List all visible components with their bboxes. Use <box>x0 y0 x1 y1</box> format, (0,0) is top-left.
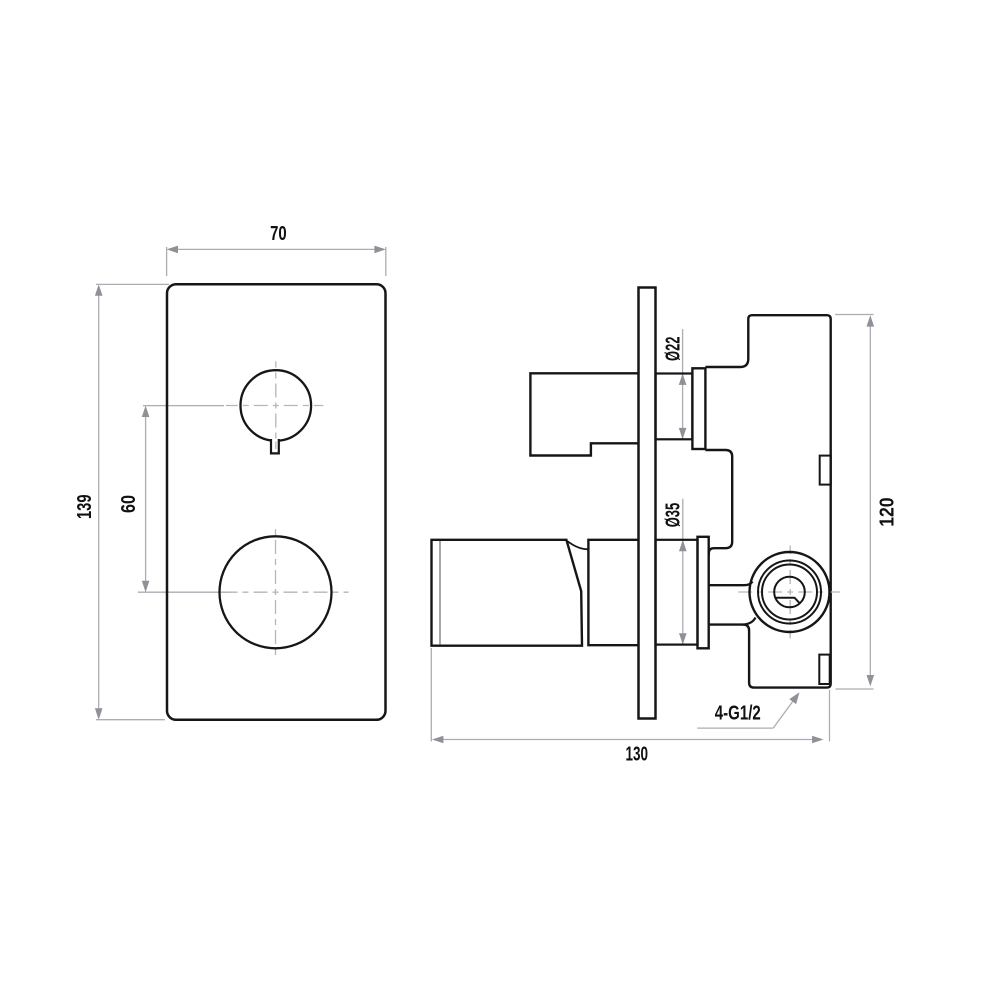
svg-text:120: 120 <box>876 497 898 526</box>
svg-text:70: 70 <box>270 223 287 245</box>
svg-text:Ø35: Ø35 <box>662 503 685 528</box>
svg-text:60: 60 <box>118 495 140 513</box>
svg-text:139: 139 <box>74 495 96 520</box>
svg-text:Ø22: Ø22 <box>662 337 685 362</box>
svg-text:4-G1/2: 4-G1/2 <box>715 702 761 725</box>
svg-text:130: 130 <box>625 744 648 766</box>
